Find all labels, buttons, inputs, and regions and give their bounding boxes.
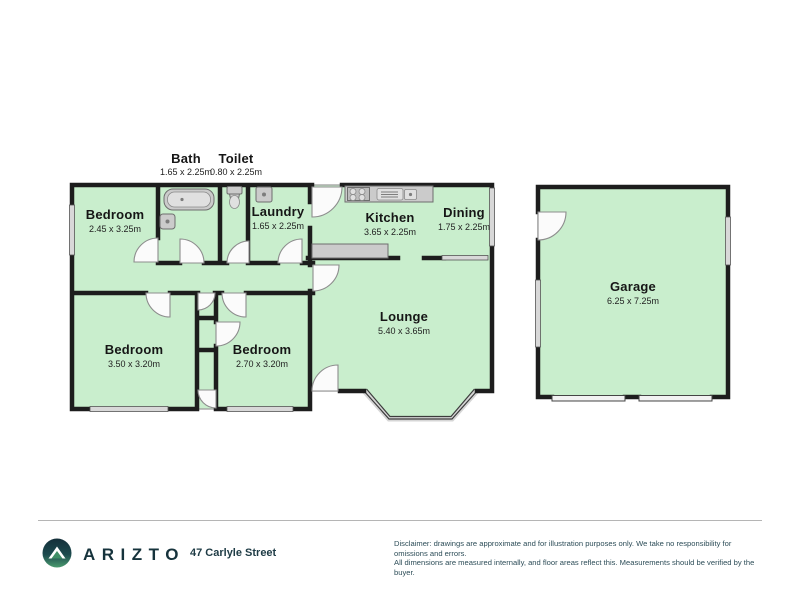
room-name: Kitchen bbox=[365, 210, 414, 225]
room-label-bedroom-1: Bedroom 2.45 x 3.25m bbox=[86, 207, 144, 234]
room-dims: 2.70 x 3.20m bbox=[236, 359, 288, 369]
garage-door-right bbox=[639, 396, 712, 402]
floorplan-page: { "plan": { "rooms": [ {"id": "bedroom-1… bbox=[0, 0, 800, 600]
room-dims: 1.65 x 2.25m bbox=[252, 221, 304, 231]
mountain-icon bbox=[42, 538, 72, 568]
room-name: Bedroom bbox=[233, 342, 291, 357]
room-label-bedroom-2: Bedroom 3.50 x 3.20m bbox=[105, 342, 163, 369]
room-name: Laundry bbox=[252, 204, 305, 219]
room-dims: 5.40 x 3.65m bbox=[378, 326, 430, 336]
kitchen-sink-icon bbox=[377, 189, 417, 201]
room-dims: 3.50 x 3.20m bbox=[108, 359, 160, 369]
disclaimer-line-1: Disclaimer: drawings are approximate and… bbox=[394, 539, 762, 558]
room-label-bedroom-3: Bedroom 2.70 x 3.20m bbox=[233, 342, 291, 369]
laundry-tub-icon bbox=[256, 187, 272, 202]
room-dims: 1.75 x 2.25m bbox=[438, 222, 490, 232]
disclaimer-text: Disclaimer: drawings are approximate and… bbox=[394, 539, 762, 578]
room-dims: 2.45 x 3.25m bbox=[89, 224, 141, 234]
room-name: Garage bbox=[610, 279, 656, 294]
footer-divider bbox=[38, 520, 762, 521]
room-name: Lounge bbox=[380, 309, 428, 324]
room-name: Bedroom bbox=[105, 342, 163, 357]
floor-plan-drawing: Bedroom 2.45 x 3.25m Bath 1.65 x 2.25m T… bbox=[0, 0, 800, 520]
room-label-dining: Dining 1.75 x 2.25m bbox=[438, 205, 490, 232]
room-name: Dining bbox=[443, 205, 485, 220]
room-name: Bedroom bbox=[86, 207, 144, 222]
room-label-garage: Garage 6.25 x 7.25m bbox=[607, 279, 659, 306]
stove-icon bbox=[348, 188, 370, 201]
garage-door-left bbox=[552, 396, 625, 402]
room-dims: 0.80 x 2.25m bbox=[210, 167, 262, 177]
room-label-kitchen: Kitchen 3.65 x 2.25m bbox=[364, 210, 416, 237]
room-label-laundry: Laundry 1.65 x 2.25m bbox=[252, 204, 305, 231]
arizto-logo bbox=[42, 538, 72, 568]
room-label-toilet: Toilet 0.80 x 2.25m bbox=[210, 151, 262, 177]
bathtub-icon bbox=[164, 189, 214, 210]
room-name: Bath bbox=[171, 151, 201, 166]
room-label-bath: Bath 1.65 x 2.25m bbox=[160, 151, 212, 177]
property-address: 47 Carlyle Street bbox=[190, 547, 276, 559]
room-label-lounge: Lounge 5.40 x 3.65m bbox=[378, 309, 430, 336]
room-dims: 6.25 x 7.25m bbox=[607, 296, 659, 306]
brand-wordmark: ARIZTO bbox=[83, 545, 185, 565]
disclaimer-line-2: All dimensions are measured internally, … bbox=[394, 558, 762, 577]
bath-sink-icon bbox=[160, 214, 175, 229]
room-dims: 3.65 x 2.25m bbox=[364, 227, 416, 237]
room-name: Toilet bbox=[219, 151, 254, 166]
room-dims: 1.65 x 2.25m bbox=[160, 167, 212, 177]
